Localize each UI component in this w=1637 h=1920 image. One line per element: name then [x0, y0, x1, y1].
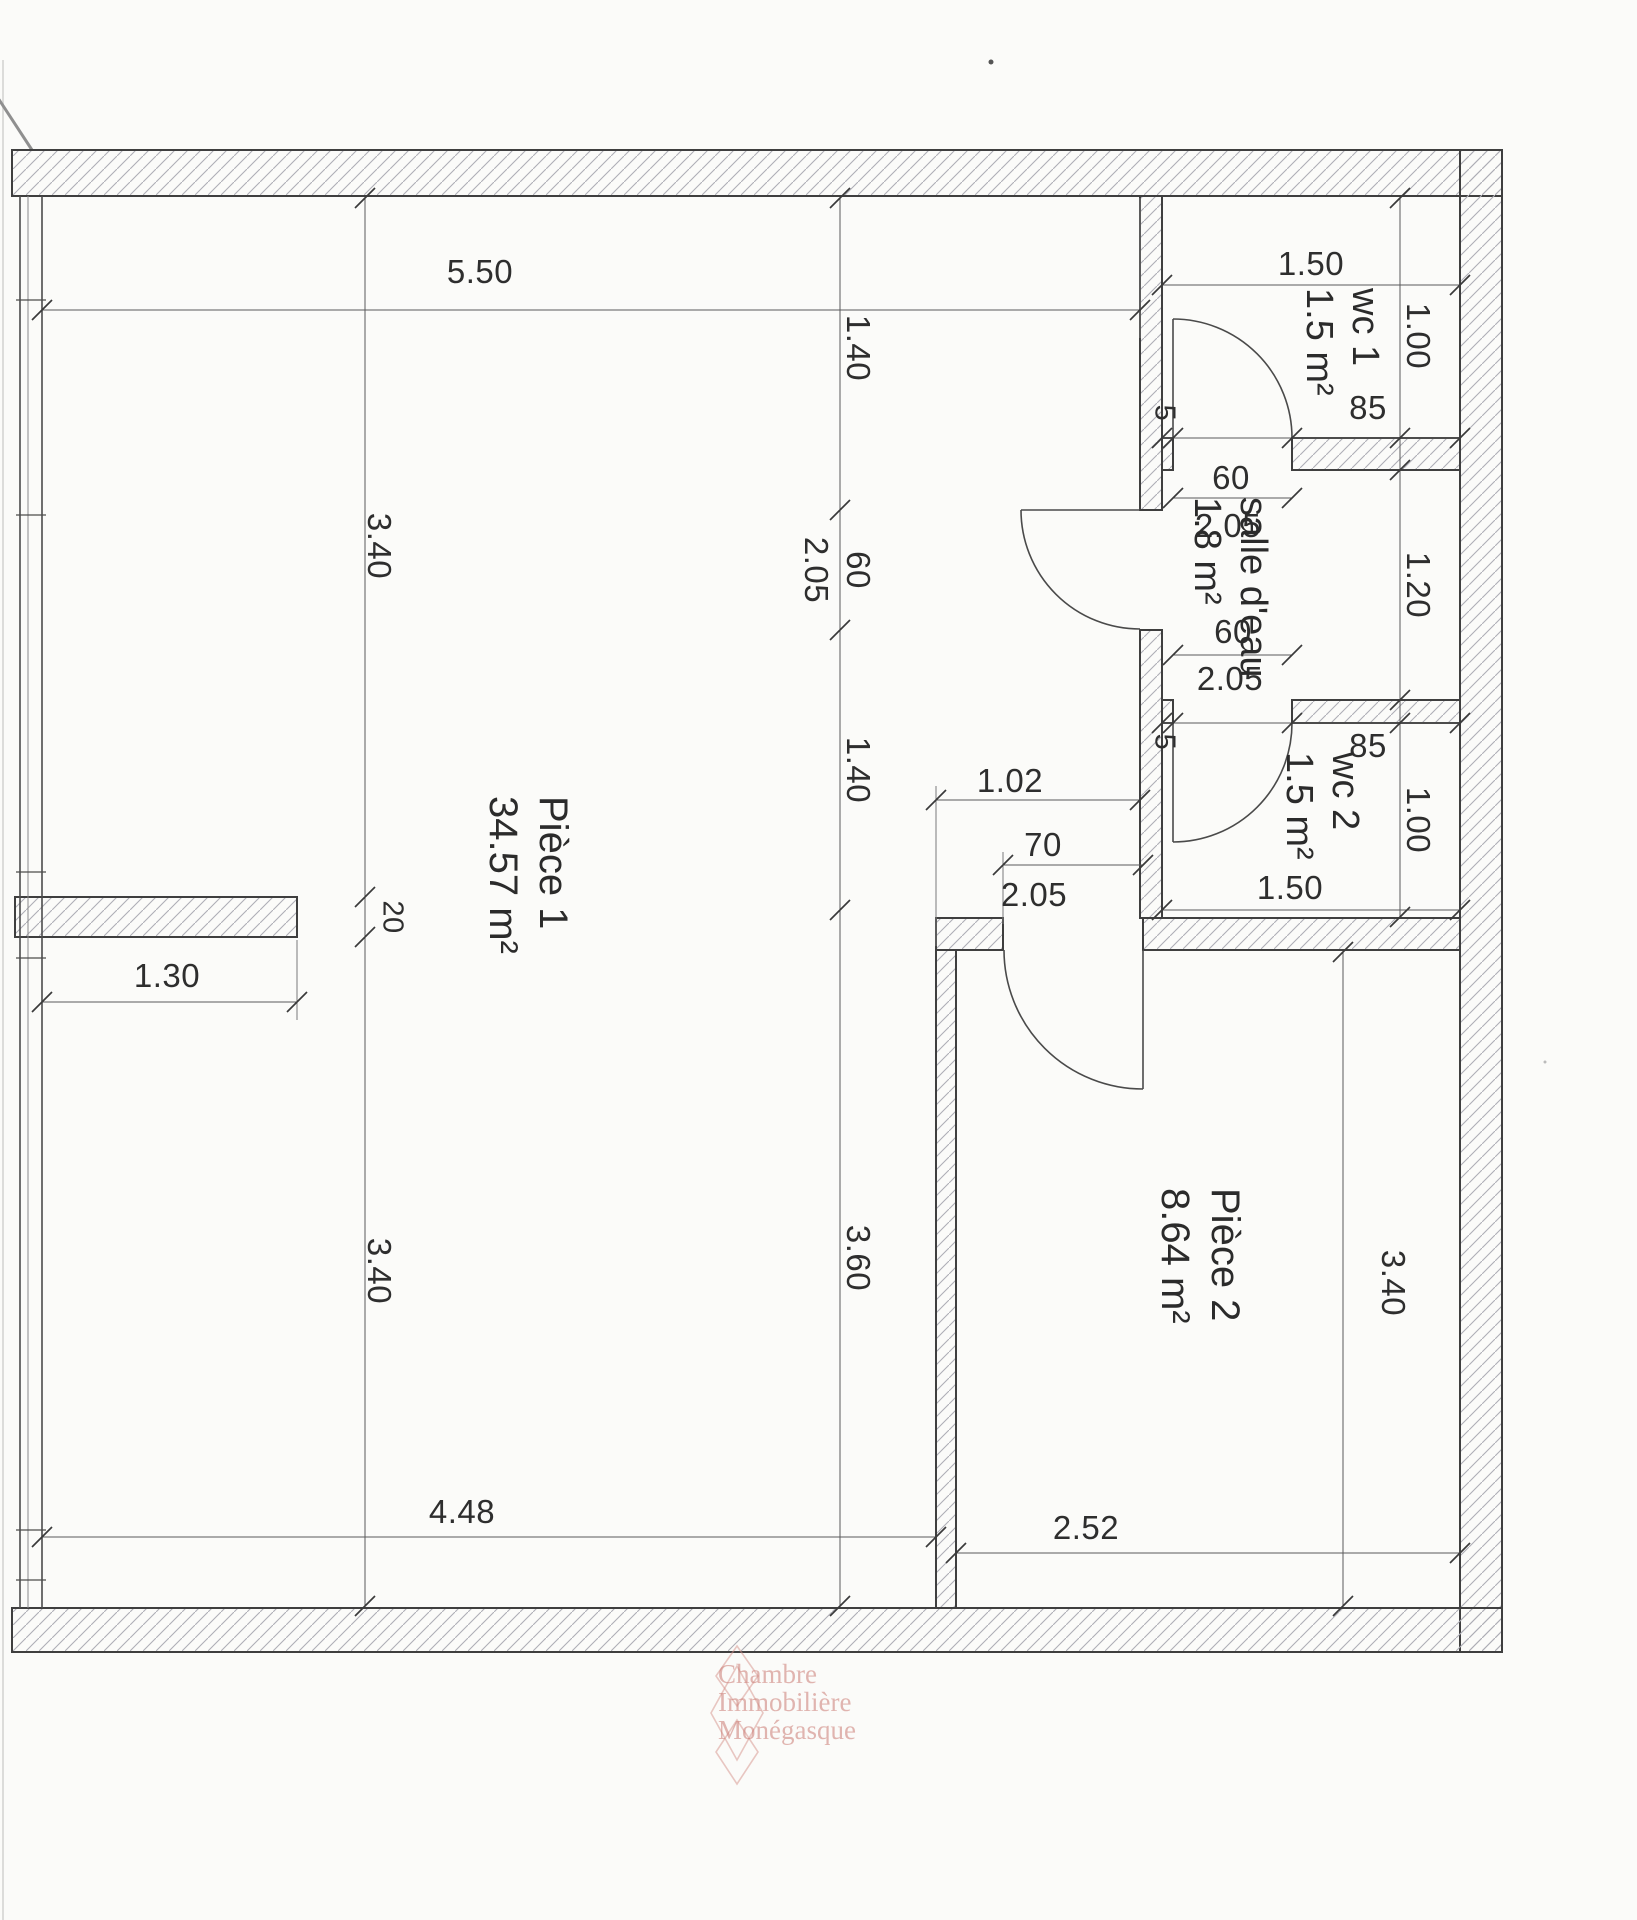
- wall-wc-column-west-upper: [1140, 196, 1162, 510]
- room-label-salledeau: salle d'eau 1.8 m²: [1184, 497, 1276, 678]
- dim-stub-thickness: 20: [376, 900, 409, 933]
- wall-right: [1460, 150, 1502, 1652]
- dim-mid-bottom: 3.60: [839, 1225, 877, 1291]
- room-area: 1.5 m²: [1296, 288, 1342, 396]
- wall-wc1-south-right: [1292, 438, 1460, 470]
- dim-wc2-width: 1.50: [1257, 869, 1323, 907]
- wall-piece2-west: [936, 950, 956, 1608]
- dim-salledeau-height: 1.20: [1399, 552, 1437, 618]
- door-piece2: [1004, 950, 1143, 1089]
- room-area: 1.8 m²: [1184, 497, 1230, 678]
- dim-left-upper-height: 3.40: [360, 513, 398, 579]
- room-name: wc 2: [1322, 752, 1368, 860]
- dim-piece2-height: 3.40: [1374, 1250, 1412, 1316]
- dim-wc1-wall-offset: 5: [1148, 405, 1181, 422]
- wall-salledeau-south-left: [1162, 700, 1173, 723]
- room-area: 1.5 m²: [1276, 752, 1322, 860]
- dim-top-width: 5.50: [447, 253, 513, 291]
- room-label-piece2: Pièce 2 8.64 m²: [1150, 1188, 1250, 1324]
- dim-passage-width: 1.02: [977, 762, 1043, 800]
- dim-mid-upper: 1.40: [839, 315, 877, 381]
- room-name: salle d'eau: [1230, 497, 1276, 678]
- room-label-piece1: Pièce 1 34.57 m²: [478, 796, 578, 954]
- room-name: wc 1: [1342, 288, 1388, 396]
- room-label-wc1: wc 1 1.5 m²: [1296, 288, 1388, 396]
- room-area: 8.64 m²: [1150, 1188, 1200, 1324]
- dim-piece2-width: 2.52: [1053, 1509, 1119, 1547]
- wall-wc-column-west-lower: [1140, 630, 1162, 918]
- room-name: Pièce 2: [1200, 1188, 1250, 1324]
- dim-left-lower-height: 3.40: [360, 1238, 398, 1304]
- room-area: 34.57 m²: [478, 796, 528, 954]
- dim-wc1-height: 1.00: [1399, 303, 1437, 369]
- dim-wc1-width: 1.50: [1278, 245, 1344, 283]
- dim-wc2-wall-offset: 5: [1148, 734, 1181, 751]
- door-salledeau: [1021, 510, 1140, 629]
- room-label-wc2: wc 2 1.5 m²: [1276, 752, 1368, 860]
- door-wc2: [1173, 723, 1292, 842]
- floor-plan-drawing: [0, 0, 1637, 1920]
- dim-salledeau-door-height: 2.05: [797, 537, 835, 603]
- wall-piece2-north-right: [1143, 918, 1460, 950]
- door-wc1: [1173, 319, 1292, 438]
- dim-mid-lower: 1.40: [839, 737, 877, 803]
- wall-piece2-north-left: [936, 918, 1003, 950]
- wall-stub: [15, 897, 297, 937]
- dim-stub-length: 1.30: [134, 957, 200, 995]
- wall-bottom: [12, 1608, 1502, 1652]
- wall-top: [12, 150, 1502, 196]
- floor-plan-page: 5.50 1.50 1.00 5 85 60 2.05 1.20 60 2.05…: [0, 0, 1637, 1920]
- dim-wc2-height: 1.00: [1399, 787, 1437, 853]
- watermark-diamond-logo: [711, 1646, 763, 1784]
- wall-salledeau-south-right: [1292, 700, 1460, 723]
- dim-wc1-door-width: 60: [1212, 459, 1250, 497]
- room-name: Pièce 1: [528, 796, 578, 954]
- dim-piece2-door-height: 2.05: [1001, 876, 1067, 914]
- dim-piece1-bottom-width: 4.48: [429, 1493, 495, 1531]
- dim-salledeau-door-width: 60: [839, 551, 877, 589]
- dim-piece2-door-width: 70: [1024, 826, 1062, 864]
